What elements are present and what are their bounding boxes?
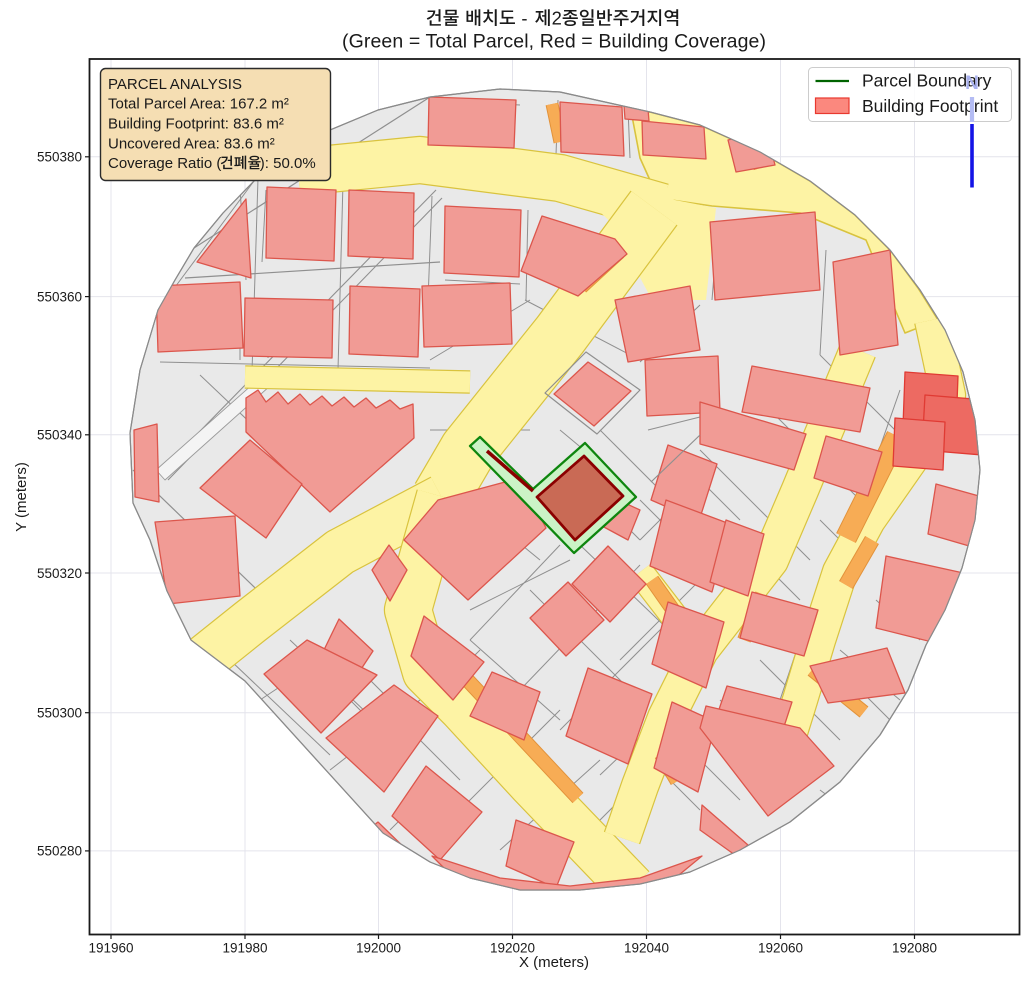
svg-text:Total Parcel Area: 167.2 m²: Total Parcel Area: 167.2 m² xyxy=(108,96,289,113)
svg-text:192060: 192060 xyxy=(758,941,803,956)
svg-text:-: - xyxy=(521,8,527,29)
svg-text:191980: 191980 xyxy=(222,941,267,956)
svg-text:550280: 550280 xyxy=(37,844,82,859)
svg-text:): 50.0%: ): 50.0% xyxy=(260,155,316,172)
svg-text:550340: 550340 xyxy=(37,428,82,443)
svg-text:PARCEL ANALYSIS: PARCEL ANALYSIS xyxy=(108,76,242,93)
svg-text:X (meters): X (meters) xyxy=(519,954,589,971)
svg-text:192000: 192000 xyxy=(356,941,401,956)
svg-text:Uncovered Area: 83.6 m²: Uncovered Area: 83.6 m² xyxy=(108,135,275,152)
svg-text:550360: 550360 xyxy=(37,289,82,304)
svg-text:192040: 192040 xyxy=(624,941,669,956)
svg-text:191960: 191960 xyxy=(88,941,133,956)
svg-text:Coverage Ratio (: Coverage Ratio ( xyxy=(108,155,221,172)
svg-text:Building Footprint: 83.6 m²: Building Footprint: 83.6 m² xyxy=(108,116,284,133)
svg-text:Building Footprint: Building Footprint xyxy=(862,96,998,116)
svg-text:550300: 550300 xyxy=(37,706,82,721)
svg-text:N: N xyxy=(965,73,979,94)
svg-text:2: 2 xyxy=(552,8,562,29)
svg-text:550320: 550320 xyxy=(37,566,82,581)
svg-text:550380: 550380 xyxy=(37,150,82,165)
svg-text:Y (meters): Y (meters) xyxy=(13,462,30,532)
svg-text:192080: 192080 xyxy=(892,941,937,956)
svg-text:(Green = Total Parcel, Red = B: (Green = Total Parcel, Red = Building Co… xyxy=(342,31,766,53)
